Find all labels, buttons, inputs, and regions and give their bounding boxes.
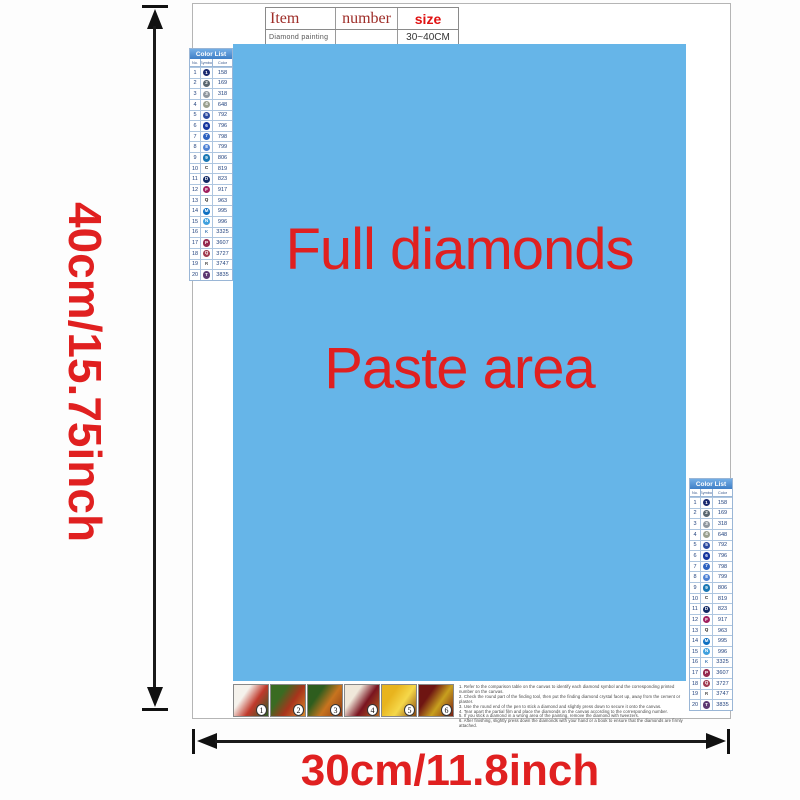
arrow-right-icon xyxy=(706,733,726,749)
instruction-line: 6. After finishing, slightly press down … xyxy=(459,719,687,729)
color-list-row: 13 Q 963 xyxy=(690,625,732,636)
vertical-arrow-line xyxy=(153,26,156,690)
color-number: 12 xyxy=(690,615,701,625)
color-list-row: 1 1 158 xyxy=(190,67,232,78)
color-symbol-icon: N xyxy=(703,648,710,655)
color-code: 169 xyxy=(213,79,232,89)
color-list-rows: 1 1 158 2 2 169 3 3 318 4 xyxy=(690,497,732,710)
spec-table-header: Item number size xyxy=(266,8,458,30)
color-code: 798 xyxy=(213,132,232,142)
vertical-arrow-top-bar xyxy=(142,5,168,8)
color-code: 963 xyxy=(713,626,732,636)
color-list-column-headers: No. Symbol Color xyxy=(690,489,732,497)
color-symbol-icon: K xyxy=(203,229,210,236)
column-no: No. xyxy=(190,59,201,66)
color-number: 20 xyxy=(190,270,201,280)
color-list-row: 4 4 648 xyxy=(690,529,732,540)
color-symbol-icon: N xyxy=(203,218,210,225)
color-code: 996 xyxy=(213,217,232,227)
color-list-row: 5 5 792 xyxy=(190,110,232,121)
horizontal-arrow-right-bar xyxy=(727,729,730,754)
color-symbol-icon: D xyxy=(203,176,210,183)
color-symbol-icon: 3 xyxy=(703,521,710,528)
color-code: 995 xyxy=(713,636,732,646)
color-list-row: 12 F 917 xyxy=(190,184,232,195)
color-symbol-icon: 4 xyxy=(203,101,210,108)
color-symbol-icon: 8 xyxy=(203,144,210,151)
color-list-row: 20 T 3835 xyxy=(190,269,232,280)
column-color: Color xyxy=(713,489,732,496)
color-symbol-icon: M xyxy=(703,638,710,645)
step-thumbnail: 6 xyxy=(418,684,454,717)
color-number: 15 xyxy=(190,217,201,227)
color-number: 13 xyxy=(690,626,701,636)
color-list-row: 7 7 798 xyxy=(690,561,732,572)
color-code: 158 xyxy=(713,498,732,508)
color-number: 18 xyxy=(190,249,201,259)
color-list-row: 12 F 917 xyxy=(690,614,732,625)
color-symbol-icon: Q xyxy=(703,680,710,687)
color-code: 648 xyxy=(213,100,232,110)
color-number: 12 xyxy=(190,185,201,195)
spec-item-value: Diamond painting xyxy=(266,30,336,45)
color-number: 5 xyxy=(190,111,201,121)
color-list-row: 6 6 796 xyxy=(690,550,732,561)
color-number: 7 xyxy=(190,132,201,142)
color-code: 823 xyxy=(713,604,732,614)
color-symbol-icon: T xyxy=(203,271,210,278)
color-symbol-icon: R xyxy=(203,261,210,268)
step-number-badge: 3 xyxy=(330,704,341,716)
color-symbol-icon: 3 xyxy=(203,91,210,98)
color-code: 798 xyxy=(713,562,732,572)
color-number: 10 xyxy=(690,594,701,604)
color-number: 19 xyxy=(190,260,201,270)
column-no: No. xyxy=(690,489,701,496)
color-code: 3835 xyxy=(713,700,732,710)
color-symbol-icon: F xyxy=(203,186,210,193)
color-number: 14 xyxy=(190,206,201,216)
color-code: 318 xyxy=(713,519,732,529)
color-number: 4 xyxy=(690,530,701,540)
color-number: 1 xyxy=(690,498,701,508)
color-number: 3 xyxy=(190,89,201,99)
color-code: 799 xyxy=(213,142,232,152)
color-list-row: 9 9 806 xyxy=(690,582,732,593)
color-number: 8 xyxy=(690,572,701,582)
color-list-row: 1 1 158 xyxy=(690,497,732,508)
color-list-row: 17 P 3607 xyxy=(190,237,232,248)
color-list-row: 2 2 169 xyxy=(190,78,232,89)
color-number: 7 xyxy=(690,562,701,572)
color-number: 6 xyxy=(690,551,701,561)
color-symbol-icon: 7 xyxy=(703,563,710,570)
color-number: 5 xyxy=(690,541,701,551)
color-list-row: 11 D 823 xyxy=(690,603,732,614)
color-number: 10 xyxy=(190,164,201,174)
color-number: 11 xyxy=(690,604,701,614)
color-number: 13 xyxy=(190,196,201,206)
color-code: 3747 xyxy=(713,690,732,700)
color-number: 8 xyxy=(190,142,201,152)
color-code: 796 xyxy=(713,551,732,561)
color-list-row: 16 K 3325 xyxy=(190,227,232,238)
color-code: 917 xyxy=(213,185,232,195)
color-code: 3747 xyxy=(213,260,232,270)
color-code: 169 xyxy=(713,509,732,519)
color-number: 18 xyxy=(690,679,701,689)
color-list-row: 11 D 823 xyxy=(190,173,232,184)
step-thumbnail: 3 xyxy=(307,684,343,717)
color-number: 2 xyxy=(690,509,701,519)
column-symbol: Symbol xyxy=(201,59,213,66)
color-symbol-icon: 1 xyxy=(203,69,210,76)
color-number: 1 xyxy=(190,68,201,78)
color-number: 2 xyxy=(190,79,201,89)
column-symbol: Symbol xyxy=(701,489,713,496)
color-code: 3835 xyxy=(213,270,232,280)
spec-header-number: number xyxy=(336,8,398,29)
color-list-row: 7 7 798 xyxy=(190,131,232,142)
spec-size-value: 30~40CM xyxy=(398,30,458,45)
color-list-row: 19 R 3747 xyxy=(690,689,732,700)
color-code: 796 xyxy=(213,121,232,131)
color-symbol-icon: 1 xyxy=(703,499,710,506)
color-symbol-icon: T xyxy=(703,701,710,708)
color-number: 16 xyxy=(190,228,201,238)
color-list-row: 15 N 996 xyxy=(190,216,232,227)
color-symbol-icon: 4 xyxy=(703,531,710,538)
color-list-row: 14 M 995 xyxy=(690,635,732,646)
color-list-row: 5 5 792 xyxy=(690,540,732,551)
step-thumbnail: 4 xyxy=(344,684,380,717)
spec-header-size: size xyxy=(398,8,458,29)
instruction-text: 1. Refer to the comparison table on the … xyxy=(459,685,687,729)
color-symbol-icon: Q xyxy=(703,627,710,634)
color-code: 819 xyxy=(713,594,732,604)
color-list-row: 2 2 169 xyxy=(690,508,732,519)
color-list-title: Color List xyxy=(190,49,232,59)
color-list-row: 14 M 995 xyxy=(190,205,232,216)
color-code: 3727 xyxy=(713,679,732,689)
color-symbol-icon: P xyxy=(703,669,710,676)
color-symbol-icon: C xyxy=(703,595,710,602)
color-list-row: 9 9 806 xyxy=(190,152,232,163)
color-list-row: 6 6 796 xyxy=(190,120,232,131)
spec-table: Item number size Diamond painting 30~40C… xyxy=(265,7,459,46)
color-code: 996 xyxy=(713,647,732,657)
color-code: 318 xyxy=(213,89,232,99)
color-symbol-icon: Q xyxy=(203,197,210,204)
horizontal-arrow-left-bar xyxy=(192,729,195,754)
color-code: 792 xyxy=(713,541,732,551)
color-list-row: 4 4 648 xyxy=(190,99,232,110)
color-symbol-icon: 7 xyxy=(203,133,210,140)
color-number: 9 xyxy=(190,153,201,163)
color-number: 16 xyxy=(690,658,701,668)
color-number: 19 xyxy=(690,690,701,700)
step-number-badge: 6 xyxy=(441,704,452,716)
color-symbol-icon: D xyxy=(703,606,710,613)
color-number: 17 xyxy=(690,668,701,678)
color-list-row: 20 T 3835 xyxy=(690,699,732,710)
column-color: Color xyxy=(213,59,232,66)
color-code: 792 xyxy=(213,111,232,121)
color-symbol-icon: 8 xyxy=(703,574,710,581)
color-list-row: 18 Q 3727 xyxy=(190,248,232,259)
color-code: 3727 xyxy=(213,249,232,259)
color-list-column-headers: No. Symbol Color xyxy=(190,59,232,67)
color-list-row: 16 K 3325 xyxy=(690,657,732,668)
color-list-row: 18 Q 3727 xyxy=(690,678,732,689)
instruction-step-thumbnails: 1 2 3 4 5 6 xyxy=(233,684,454,717)
color-symbol-icon: P xyxy=(203,239,210,246)
step-thumbnail: 5 xyxy=(381,684,417,717)
color-symbol-icon: 9 xyxy=(703,584,710,591)
color-number: 17 xyxy=(190,238,201,248)
vertical-arrow-bottom-bar xyxy=(142,708,168,711)
color-symbol-icon: 9 xyxy=(203,154,210,161)
color-list-row: 8 8 799 xyxy=(190,141,232,152)
paste-area-title-line2: Paste area xyxy=(324,335,595,402)
color-list-left: Color List No. Symbol Color 1 1 158 2 2 … xyxy=(189,48,233,281)
color-symbol-icon: 6 xyxy=(203,122,210,129)
color-list-row: 10 C 819 xyxy=(690,593,732,604)
color-code: 995 xyxy=(213,206,232,216)
step-thumbnail: 1 xyxy=(233,684,269,717)
color-code: 3325 xyxy=(213,228,232,238)
horizontal-arrow-line xyxy=(215,740,707,743)
color-list-right: Color List No. Symbol Color 1 1 158 2 2 … xyxy=(689,478,733,711)
color-number: 15 xyxy=(690,647,701,657)
color-list-row: 13 Q 963 xyxy=(190,195,232,206)
color-symbol-icon: 2 xyxy=(703,510,710,517)
color-symbol-icon: C xyxy=(203,165,210,172)
color-list-row: 3 3 318 xyxy=(690,518,732,529)
color-symbol-icon: R xyxy=(703,691,710,698)
color-symbol-icon: 6 xyxy=(703,552,710,559)
width-dimension-label: 30cm/11.8inch xyxy=(301,746,599,796)
color-symbol-icon: K xyxy=(703,659,710,666)
color-code: 3325 xyxy=(713,658,732,668)
step-number-badge: 2 xyxy=(293,704,304,716)
arrow-left-icon xyxy=(197,733,217,749)
color-code: 806 xyxy=(213,153,232,163)
color-list-title: Color List xyxy=(690,479,732,489)
color-code: 963 xyxy=(213,196,232,206)
color-code: 806 xyxy=(713,583,732,593)
color-number: 9 xyxy=(690,583,701,593)
color-number: 11 xyxy=(190,174,201,184)
color-number: 6 xyxy=(190,121,201,131)
color-number: 14 xyxy=(690,636,701,646)
color-code: 799 xyxy=(713,572,732,582)
color-list-row: 8 8 799 xyxy=(690,571,732,582)
spec-number-value xyxy=(336,30,398,45)
step-number-badge: 1 xyxy=(256,704,267,716)
color-code: 158 xyxy=(213,68,232,78)
color-symbol-icon: Q xyxy=(203,250,210,257)
arrow-down-icon xyxy=(147,687,163,707)
step-number-badge: 4 xyxy=(367,704,378,716)
color-number: 20 xyxy=(690,700,701,710)
color-code: 3607 xyxy=(713,668,732,678)
spec-table-row: Diamond painting 30~40CM xyxy=(266,30,458,45)
product-image: Item number size Diamond painting 30~40C… xyxy=(0,0,800,800)
paste-area: Full diamonds Paste area xyxy=(233,44,686,681)
paste-area-title-line1: Full diamonds xyxy=(285,216,633,283)
color-code: 823 xyxy=(213,174,232,184)
color-list-rows: 1 1 158 2 2 169 3 3 318 4 xyxy=(190,67,232,280)
color-symbol-icon: 5 xyxy=(203,112,210,119)
color-code: 819 xyxy=(213,164,232,174)
color-number: 4 xyxy=(190,100,201,110)
step-thumbnail: 2 xyxy=(270,684,306,717)
color-symbol-icon: 5 xyxy=(703,542,710,549)
step-number-badge: 5 xyxy=(404,704,415,716)
color-symbol-icon: M xyxy=(203,208,210,215)
spec-header-item: Item xyxy=(266,8,336,29)
color-code: 648 xyxy=(713,530,732,540)
color-number: 3 xyxy=(690,519,701,529)
color-code: 917 xyxy=(713,615,732,625)
color-code: 3607 xyxy=(213,238,232,248)
color-list-row: 19 R 3747 xyxy=(190,259,232,270)
color-list-row: 3 3 318 xyxy=(190,88,232,99)
color-list-row: 10 C 819 xyxy=(190,163,232,174)
color-list-row: 17 P 3607 xyxy=(690,667,732,678)
color-list-row: 15 N 996 xyxy=(690,646,732,657)
color-symbol-icon: F xyxy=(703,616,710,623)
height-dimension-label: 40cm/15.75inch xyxy=(58,202,112,542)
color-symbol-icon: 2 xyxy=(203,80,210,87)
